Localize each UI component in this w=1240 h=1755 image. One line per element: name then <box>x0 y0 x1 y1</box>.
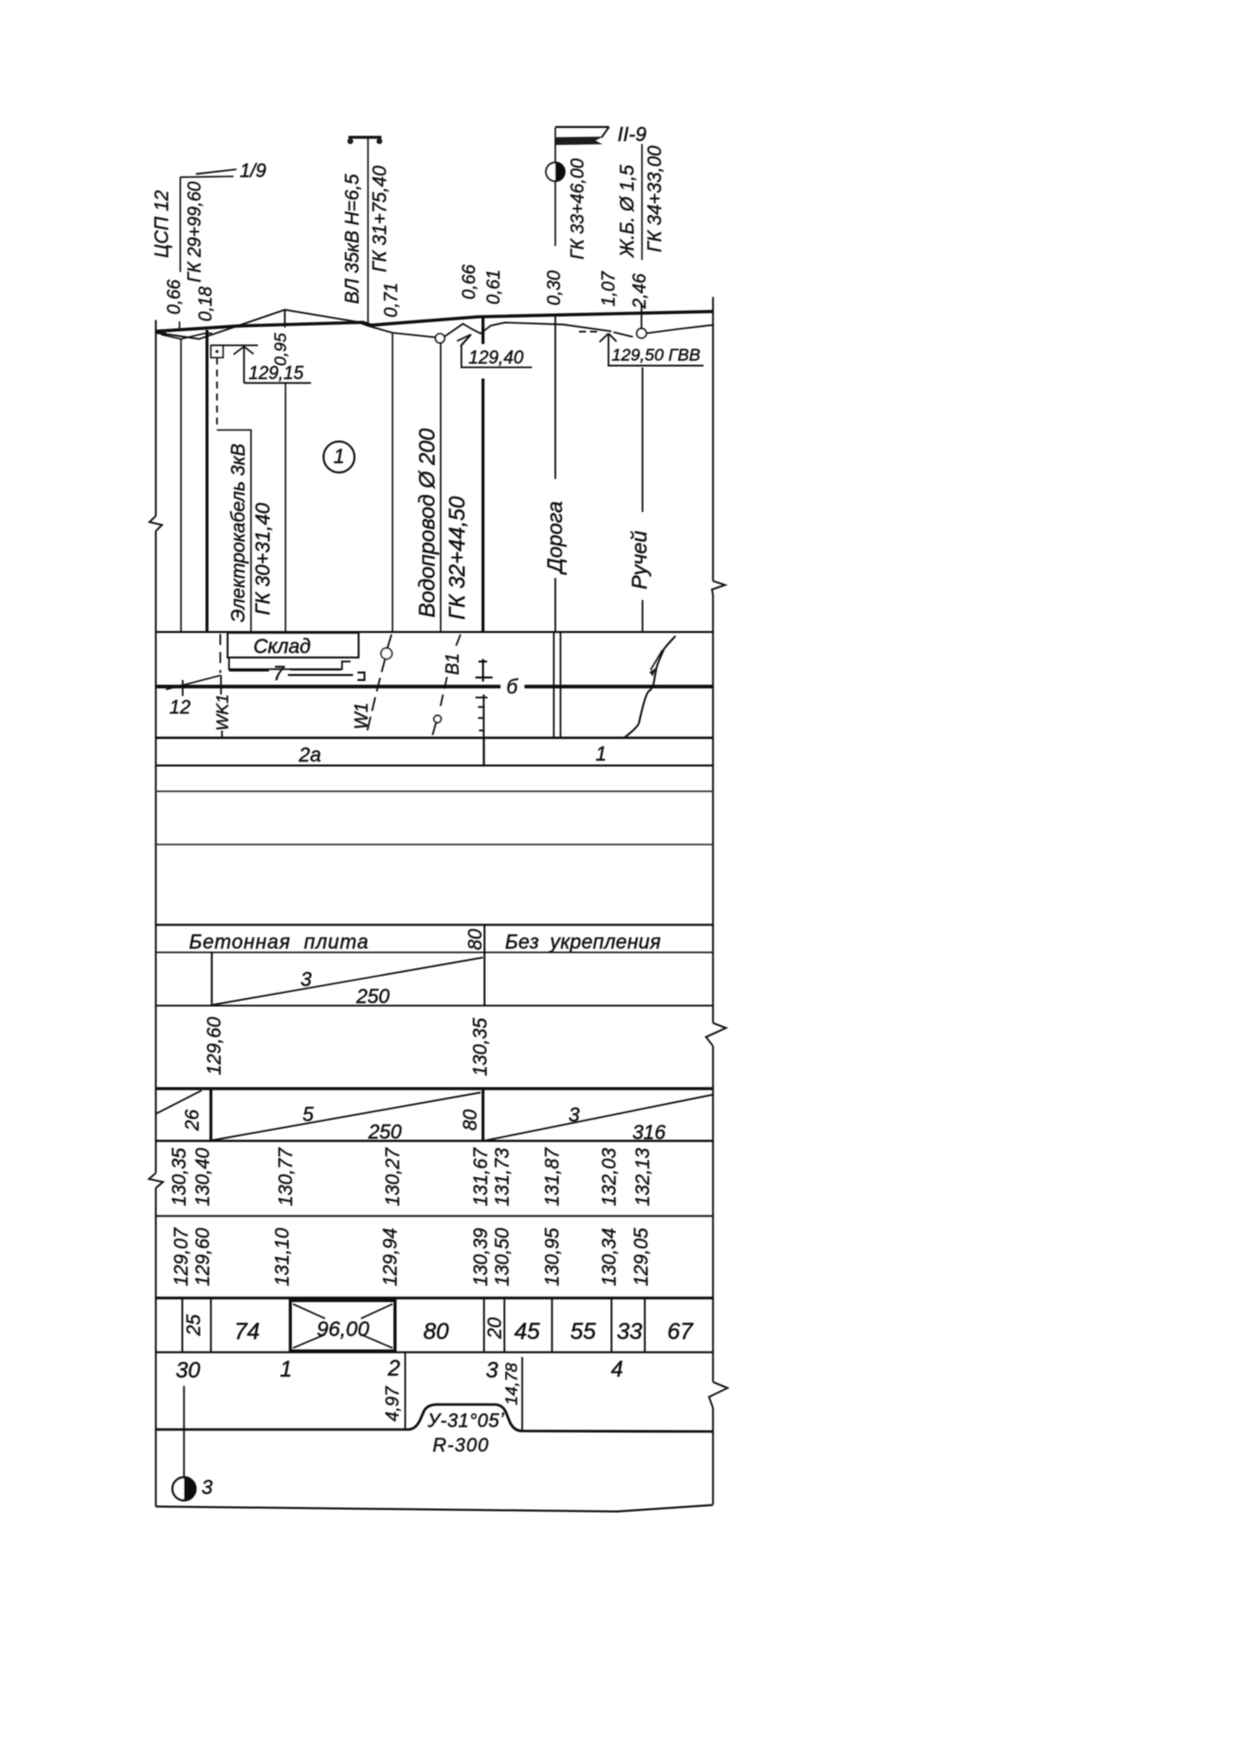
svg-text:25: 25 <box>184 1314 205 1337</box>
svg-text:II-9: II-9 <box>618 124 647 146</box>
svg-text:Водопровод Ø 200: Водопровод Ø 200 <box>415 428 440 618</box>
svg-text:130,27: 130,27 <box>383 1147 404 1207</box>
svg-text:130,77: 130,77 <box>276 1147 297 1207</box>
svg-text:131,73: 131,73 <box>493 1148 514 1207</box>
svg-text:ГК 34+33,00: ГК 34+33,00 <box>645 145 666 252</box>
svg-text:ВЛ 35кВ Н=6,5: ВЛ 35кВ Н=6,5 <box>343 174 364 304</box>
svg-text:0,66: 0,66 <box>459 264 479 300</box>
svg-text:2а: 2а <box>298 745 321 767</box>
svg-text:ГК 32+44,50: ГК 32+44,50 <box>445 496 470 620</box>
svg-text:0,18: 0,18 <box>196 286 216 321</box>
svg-text:131,87: 131,87 <box>543 1147 564 1207</box>
svg-text:Ручей: Ручей <box>629 530 652 589</box>
svg-text:74: 74 <box>234 1318 260 1344</box>
svg-text:2,46: 2,46 <box>630 273 650 310</box>
svg-text:132,03: 132,03 <box>600 1148 621 1207</box>
svg-text:4,97: 4,97 <box>383 1386 403 1422</box>
svg-text:Без укрепления: Без укрепления <box>505 932 661 954</box>
svg-text:Дорога: Дорога <box>544 501 567 575</box>
svg-text:33: 33 <box>617 1318 643 1344</box>
svg-text:26: 26 <box>183 1109 204 1132</box>
svg-text:1: 1 <box>280 1357 292 1382</box>
svg-text:80: 80 <box>466 929 487 951</box>
svg-text:130,35: 130,35 <box>471 1018 492 1077</box>
svg-text:250: 250 <box>355 986 389 1008</box>
svg-text:В1: В1 <box>443 653 463 675</box>
svg-text:Бетонная плита: Бетонная плита <box>189 932 369 954</box>
svg-text:ГК 33+46,00: ГК 33+46,00 <box>568 159 588 260</box>
svg-text:132,13: 132,13 <box>633 1148 654 1207</box>
svg-text:14,78: 14,78 <box>502 1362 521 1405</box>
svg-text:У-31°05ʼ: У-31°05ʼ <box>427 1411 505 1432</box>
svg-text:3: 3 <box>568 1105 579 1127</box>
svg-text:0,66: 0,66 <box>164 279 184 315</box>
svg-text:80: 80 <box>423 1318 449 1344</box>
svg-text:Ж.Б. Ø 1,5: Ж.Б. Ø 1,5 <box>618 165 639 259</box>
svg-text:55: 55 <box>570 1318 596 1344</box>
svg-text:45: 45 <box>514 1318 540 1344</box>
svg-text:1: 1 <box>595 744 606 766</box>
svg-text:1/9: 1/9 <box>240 161 267 182</box>
svg-text:7: 7 <box>273 663 285 685</box>
svg-text:130,50: 130,50 <box>493 1228 514 1287</box>
svg-text:130,34: 130,34 <box>600 1228 621 1286</box>
svg-text:130,35: 130,35 <box>170 1148 191 1207</box>
svg-text:ГК 31+75,40: ГК 31+75,40 <box>370 165 391 272</box>
svg-text:ГК 30+31,40: ГК 30+31,40 <box>253 503 275 615</box>
svg-text:67: 67 <box>667 1318 694 1344</box>
svg-text:80: 80 <box>461 1109 482 1131</box>
svg-text:ГК 29+99,60: ГК 29+99,60 <box>185 182 205 283</box>
svg-text:129,40: 129,40 <box>468 348 523 368</box>
svg-text:129,05: 129,05 <box>632 1228 653 1287</box>
svg-text:б: б <box>506 677 518 699</box>
svg-text:W1: W1 <box>352 703 372 730</box>
svg-text:12: 12 <box>169 698 191 719</box>
svg-text:250: 250 <box>367 1122 401 1144</box>
svg-text:130,39: 130,39 <box>471 1228 492 1287</box>
svg-text:20: 20 <box>485 1317 506 1340</box>
svg-text:3: 3 <box>486 1358 499 1383</box>
svg-text:3: 3 <box>300 969 311 991</box>
svg-text:316: 316 <box>632 1122 666 1144</box>
svg-text:131,67: 131,67 <box>471 1147 492 1207</box>
svg-text:ЦСП 12: ЦСП 12 <box>152 190 173 258</box>
svg-text:1: 1 <box>333 446 344 468</box>
svg-text:130,95: 130,95 <box>543 1228 564 1287</box>
svg-text:0,95: 0,95 <box>271 332 290 366</box>
svg-text:3: 3 <box>201 1477 212 1499</box>
svg-text:129,50 ГВВ: 129,50 ГВВ <box>612 346 701 365</box>
svg-text:129,07: 129,07 <box>172 1227 193 1287</box>
svg-text:WK1: WK1 <box>213 694 232 731</box>
svg-text:1,07: 1,07 <box>599 271 619 307</box>
svg-text:131,10: 131,10 <box>273 1228 294 1287</box>
svg-text:Склад: Склад <box>253 636 310 658</box>
svg-text:129,60: 129,60 <box>193 1228 214 1287</box>
svg-text:4: 4 <box>611 1357 623 1382</box>
svg-text:129,94: 129,94 <box>381 1228 402 1286</box>
svg-text:0,30: 0,30 <box>544 270 564 305</box>
svg-text:Электрокабель 3кВ: Электрокабель 3кВ <box>229 443 250 622</box>
svg-text:96,00: 96,00 <box>317 1318 370 1341</box>
svg-text:130,40: 130,40 <box>193 1148 214 1207</box>
svg-text:2: 2 <box>387 1356 400 1381</box>
svg-text:30: 30 <box>176 1358 201 1383</box>
svg-text:5: 5 <box>302 1104 314 1126</box>
svg-text:129,60: 129,60 <box>205 1017 226 1076</box>
svg-text:R-300: R-300 <box>433 1436 490 1457</box>
svg-text:0,61: 0,61 <box>484 269 504 304</box>
svg-text:0,71: 0,71 <box>381 282 401 317</box>
